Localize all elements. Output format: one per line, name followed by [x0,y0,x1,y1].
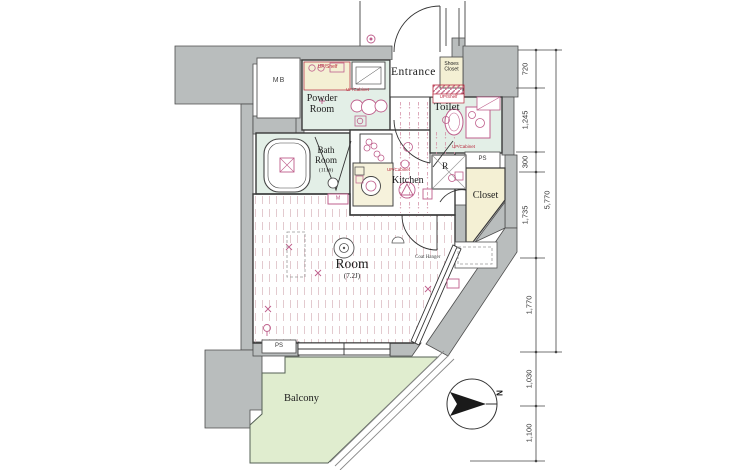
floor-plan-drawing [0,0,730,470]
up-cabinet-kitchen-label: UP/Cabinet [387,167,410,172]
wall-west [241,104,253,350]
entrance-label: Entrance [391,66,436,79]
dim-1245: 1,245 [521,111,530,130]
shoes-closet-label: Shoes Closet [440,61,463,72]
kitchen-sink [362,177,381,196]
wall-top-right [463,46,518,97]
toilet-label: Toilet [434,101,460,113]
north-label: N [496,390,505,396]
wall-east-toilet [502,97,514,155]
up-shelf-powder-label: UP/Shelf [305,64,350,70]
closet-label: Closet [466,190,505,201]
mb-label: MB [264,77,294,85]
dim-300: 300 [521,156,530,169]
balcony-label: Balcony [284,393,319,405]
floor-plan-page: Entrance Shoes Closet Powder Room Toilet… [0,0,730,470]
room-size-label: (7.2J) [320,273,384,281]
up-shelf-toilet-label: UP/Shelf [433,94,464,99]
wall-south-corner [390,343,421,356]
bath-room-label: Bath Room [304,145,348,165]
coat-hanger-label: Coat Hanger [415,254,440,260]
room-label: Room [320,256,384,271]
dim-1030: 1,030 [525,370,534,389]
powder-room-label: Powder Room [294,93,350,115]
up-cabinet-powder-label: UP/Cabinet [346,87,369,92]
balcony-floor [250,357,438,463]
dim-total-5770: 5,770 [543,191,552,210]
entry-door-arc [394,6,440,52]
dimension-ticks [535,49,558,463]
wall-southwest [205,350,262,428]
north-arrow-icon [447,379,497,429]
ps-bottom-label: PS [262,342,296,349]
toilet-tank [466,107,490,138]
wall-stub-lines [360,1,465,46]
ps-top-label: PS [465,155,500,162]
wall-east-closet [505,155,517,228]
kitchen-label: Kitchen [392,175,424,186]
dim-1770: 1,770 [525,296,534,315]
dim-720: 720 [521,63,530,76]
m-label: M [328,195,348,201]
bath-stool [328,178,338,188]
dim-1735: 1,735 [521,206,530,225]
wall-room-closet [455,205,466,242]
bath-size-label: (1116) [304,167,348,173]
wall-under-mb [253,116,302,134]
fridge-label: R [442,162,448,173]
up-cabinet-toilet-label: UP/Cabinet [452,144,475,149]
dim-1100: 1,100 [525,424,534,443]
